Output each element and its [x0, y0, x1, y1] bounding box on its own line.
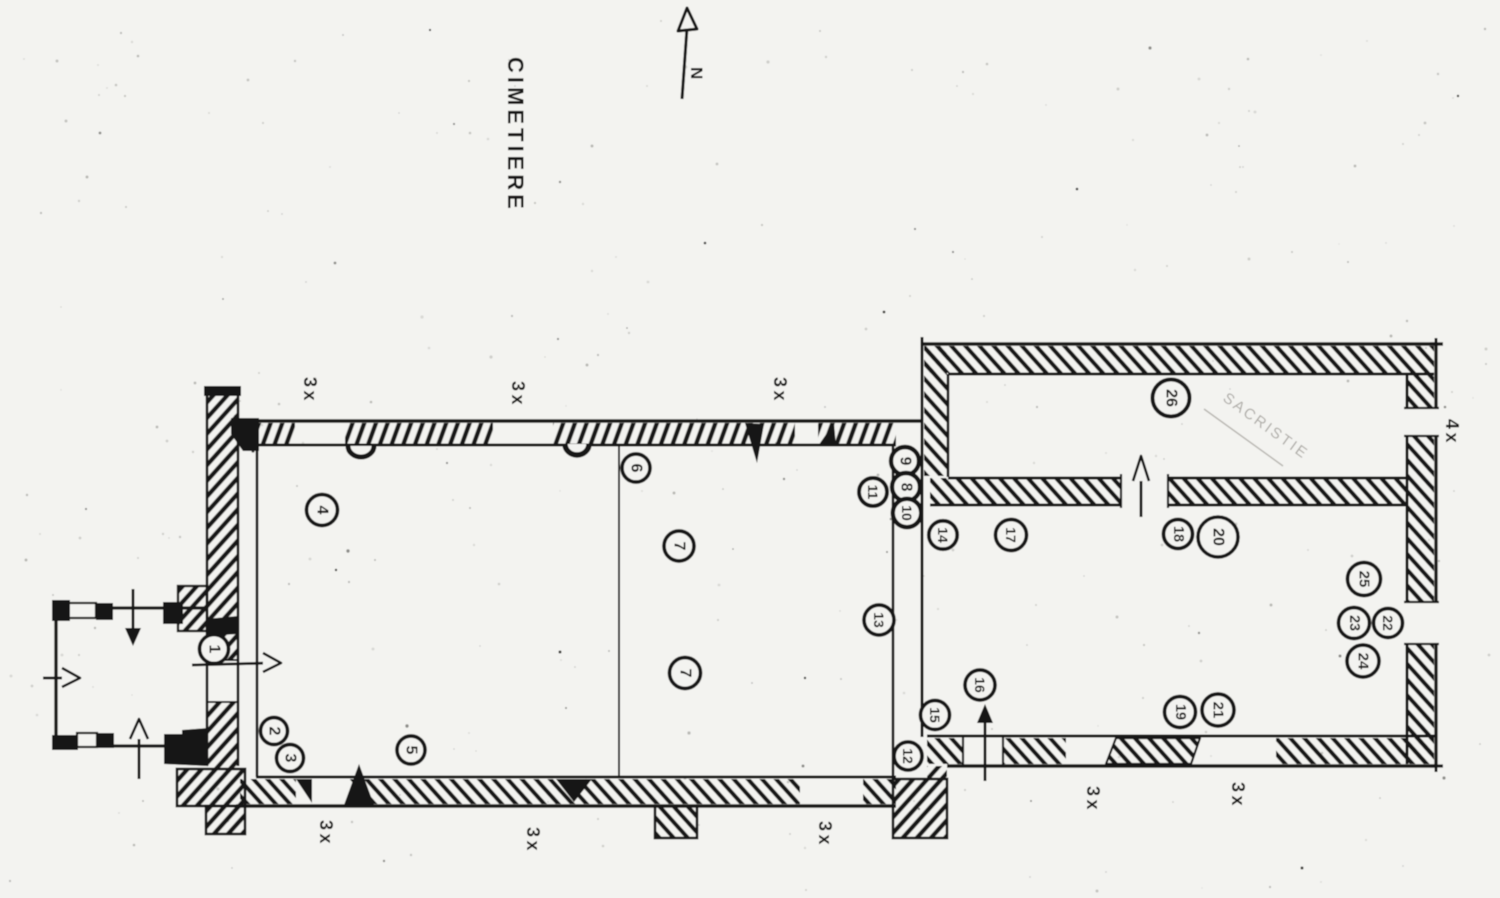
svg-text:3x: 3x	[1228, 782, 1248, 809]
svg-text:5: 5	[403, 746, 420, 755]
svg-text:16: 16	[972, 677, 988, 693]
svg-text:3: 3	[282, 754, 299, 763]
svg-text:3x: 3x	[300, 377, 320, 404]
svg-text:1: 1	[206, 645, 223, 654]
svg-text:10: 10	[899, 505, 915, 521]
svg-text:13: 13	[871, 612, 887, 628]
svg-text:20: 20	[1210, 528, 1227, 546]
svg-text:11: 11	[865, 485, 881, 500]
svg-text:3x: 3x	[316, 820, 336, 847]
svg-text:18: 18	[1170, 526, 1186, 542]
svg-text:2: 2	[266, 727, 283, 736]
svg-text:21: 21	[1210, 702, 1227, 719]
svg-text:7: 7	[671, 542, 688, 551]
svg-text:9: 9	[897, 457, 914, 466]
svg-text:14: 14	[935, 527, 951, 543]
svg-text:3x: 3x	[508, 381, 528, 408]
svg-text:3x: 3x	[523, 827, 543, 854]
svg-text:12: 12	[900, 748, 916, 764]
svg-text:N: N	[687, 67, 706, 79]
svg-text:3x: 3x	[815, 821, 835, 848]
svg-text:23: 23	[1346, 615, 1362, 631]
svg-text:4x: 4x	[1442, 419, 1462, 446]
svg-text:26: 26	[1163, 389, 1180, 407]
svg-text:19: 19	[1172, 704, 1188, 720]
svg-text:25: 25	[1356, 571, 1373, 588]
svg-text:17: 17	[1003, 527, 1019, 543]
svg-text:6: 6	[628, 464, 645, 473]
svg-text:CIMETIERE: CIMETIERE	[503, 57, 528, 213]
svg-text:3x: 3x	[770, 377, 790, 404]
svg-text:8: 8	[898, 483, 915, 492]
svg-text:3x: 3x	[1083, 786, 1103, 813]
svg-text:4: 4	[314, 506, 331, 515]
svg-text:24: 24	[1355, 653, 1372, 670]
svg-text:7: 7	[677, 669, 694, 678]
svg-text:15: 15	[927, 707, 943, 723]
svg-text:22: 22	[1380, 615, 1396, 631]
